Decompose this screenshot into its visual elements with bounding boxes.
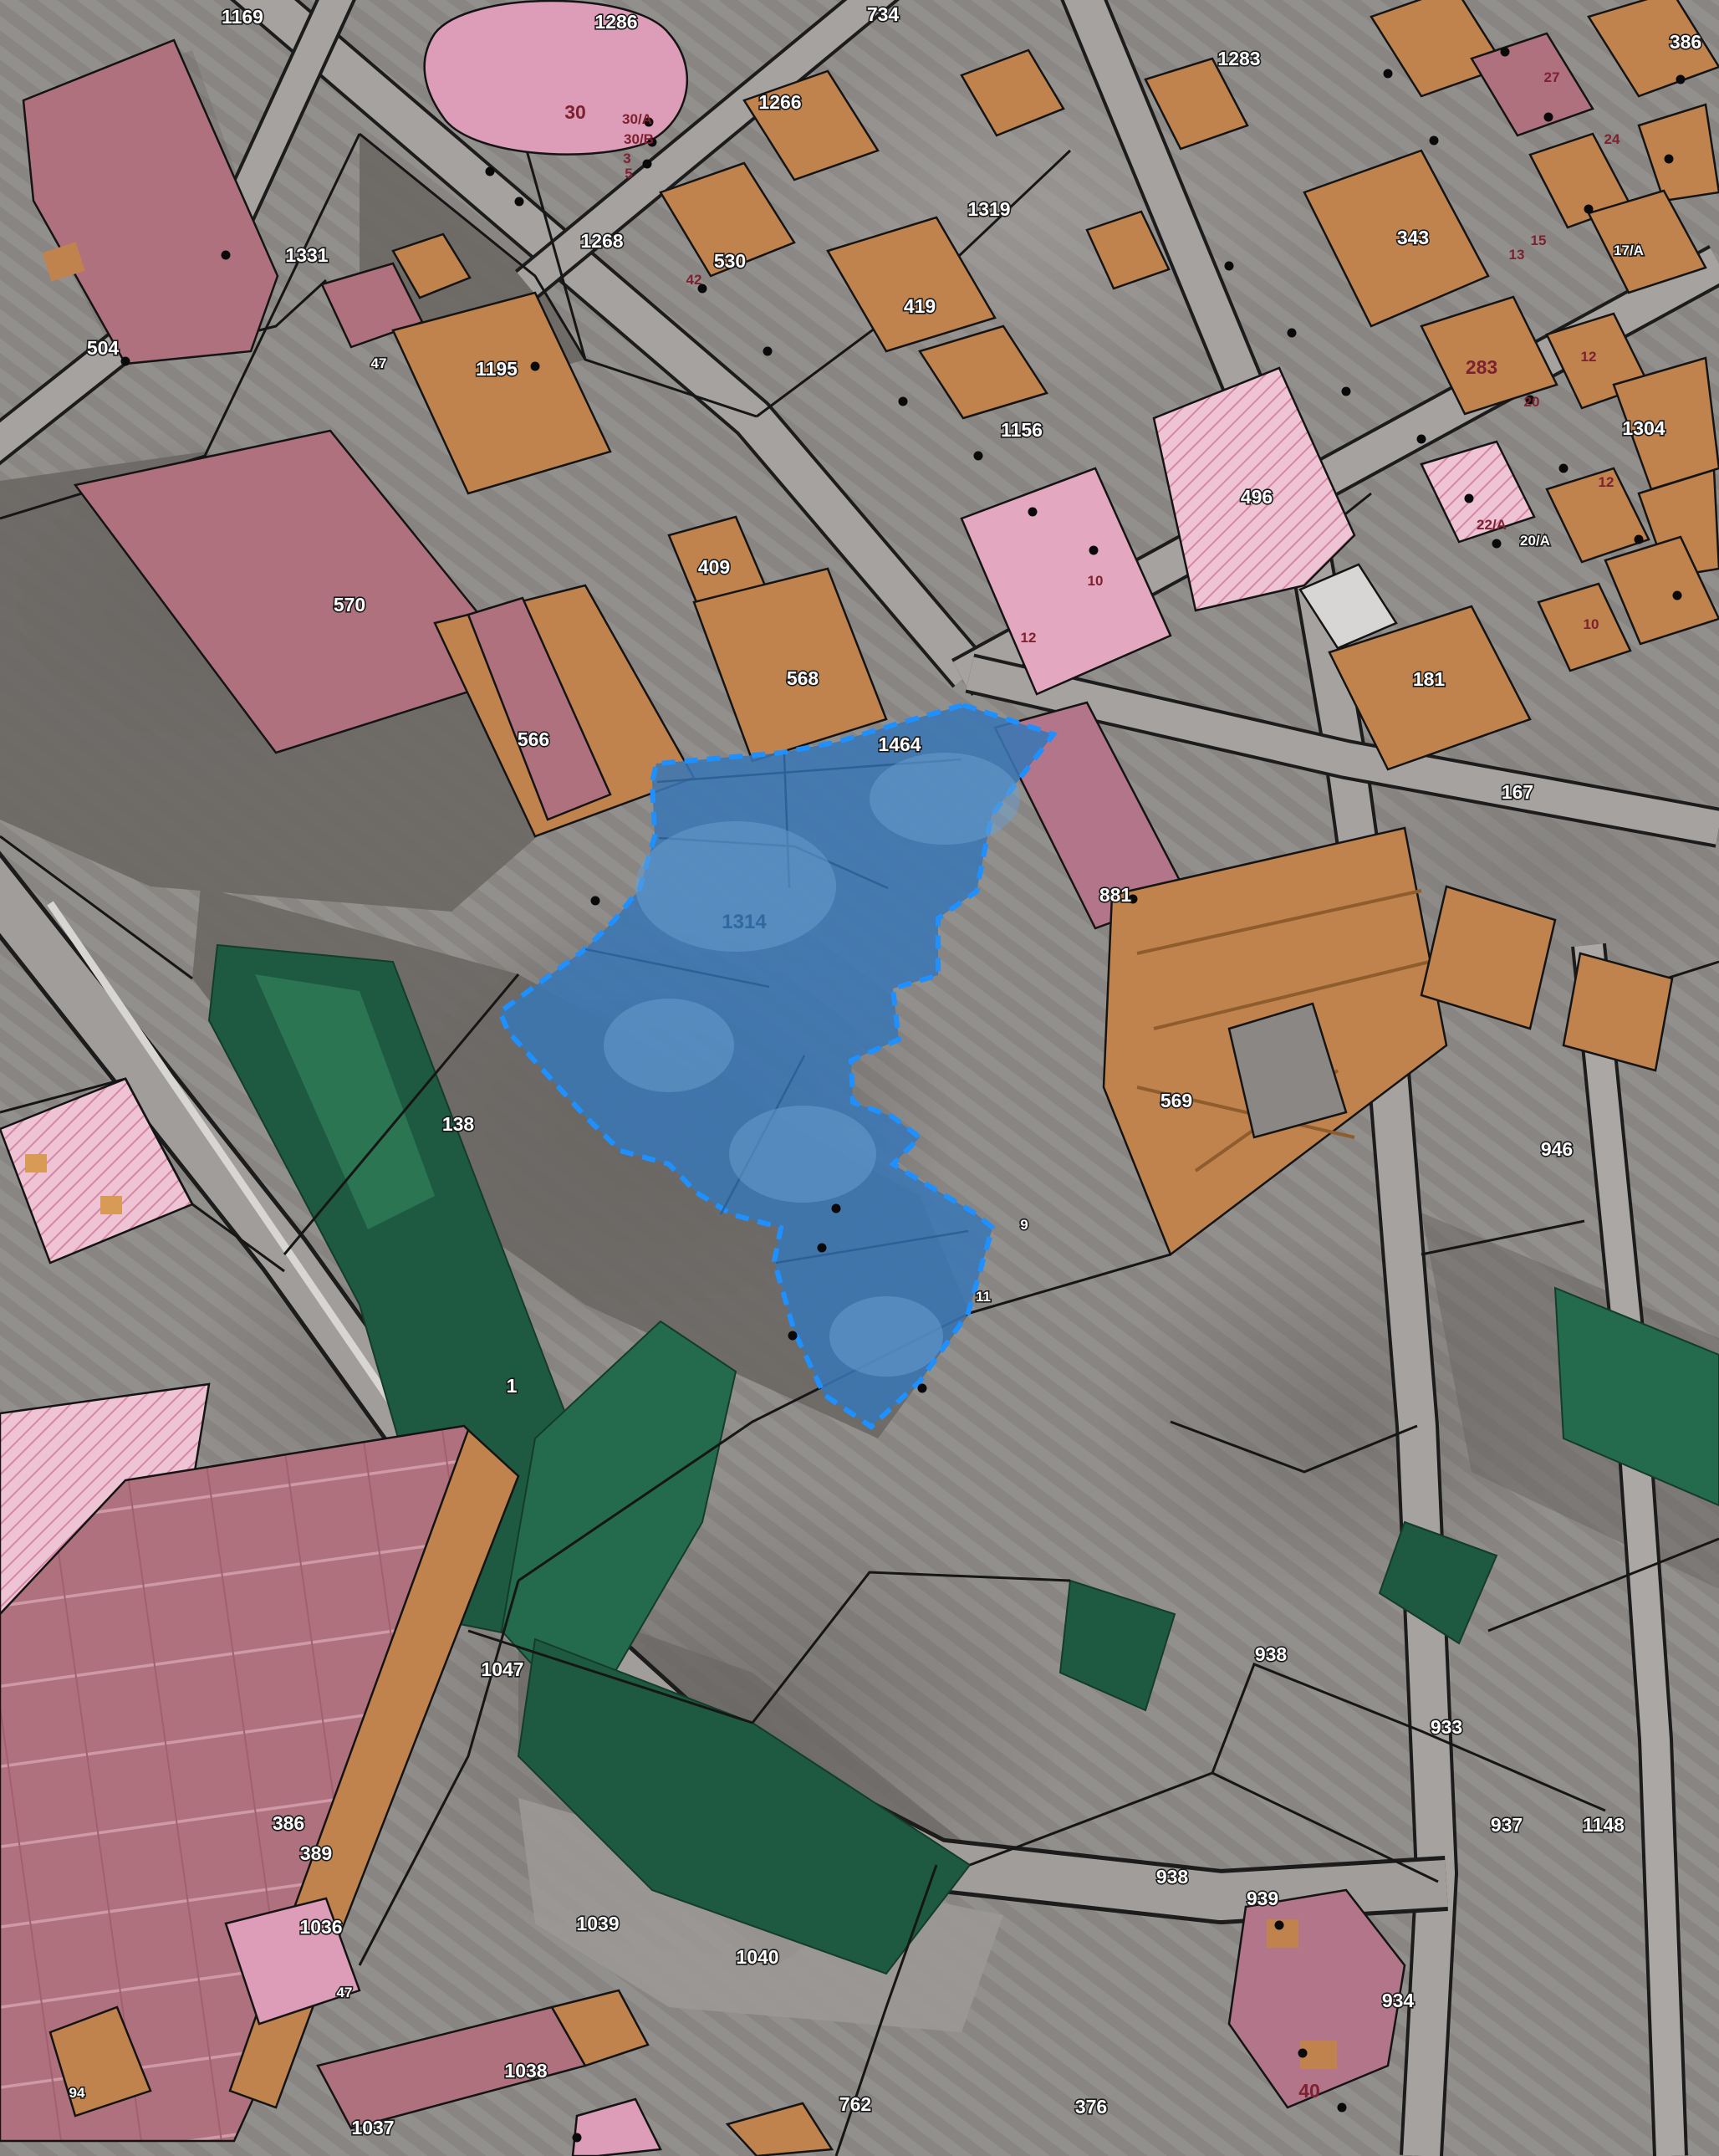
parcel-label-881: 881 xyxy=(1099,884,1132,906)
parcel-label-496: 496 xyxy=(1241,486,1273,508)
parcel-label-15: 15 xyxy=(1531,232,1547,248)
parcel-label-24: 24 xyxy=(1604,131,1620,147)
parcel-label-946: 946 xyxy=(1541,1138,1573,1160)
survey-point xyxy=(1635,535,1644,544)
survey-point xyxy=(121,357,130,366)
parcel-label-1266: 1266 xyxy=(758,91,801,113)
parcel-label-138: 138 xyxy=(442,1113,475,1135)
parcel-label-3: 3 xyxy=(623,151,630,166)
parcel-label-47: 47 xyxy=(371,355,387,371)
parcel-label-9: 9 xyxy=(1020,1217,1028,1233)
parcel-label-1464: 1464 xyxy=(878,733,921,755)
survey-point xyxy=(222,251,231,260)
survey-point xyxy=(788,1331,798,1341)
parcel-label-734: 734 xyxy=(867,3,900,25)
survey-point xyxy=(1584,205,1594,214)
survey-point xyxy=(1665,155,1674,164)
parcel-label-1286: 1286 xyxy=(594,11,637,33)
parcel-label-389: 389 xyxy=(300,1842,332,1864)
parcel-label-1319: 1319 xyxy=(967,198,1010,220)
gis-viewer: { "map": { "type": "cadastral-orthophoto… xyxy=(0,0,1719,2156)
parcel-label-1148: 1148 xyxy=(1583,1814,1625,1836)
parcel-label-1283: 1283 xyxy=(1217,48,1260,69)
parcel-label-1036: 1036 xyxy=(299,1916,342,1938)
parcel-label-386: 386 xyxy=(273,1812,304,1834)
parcel-label-1047: 1047 xyxy=(481,1658,523,1680)
survey-point xyxy=(1342,387,1351,396)
parcel-label-12: 12 xyxy=(1599,474,1614,490)
parcel-label-1: 1 xyxy=(507,1375,518,1397)
survey-point xyxy=(832,1204,841,1213)
parcel-label-762: 762 xyxy=(839,2093,871,2115)
parcel-label-12: 12 xyxy=(1581,349,1597,365)
survey-point xyxy=(918,1384,927,1393)
survey-point xyxy=(1544,113,1553,122)
parcel-label-20-A: 20/A xyxy=(1520,533,1550,549)
parcel-label-1038: 1038 xyxy=(504,2060,547,2082)
parcel-label-30: 30 xyxy=(564,101,586,123)
parcel-label-568: 568 xyxy=(787,667,819,689)
parcel-label-1195: 1195 xyxy=(476,358,518,380)
parcel-label-1314: 1314 xyxy=(722,911,767,933)
survey-point xyxy=(1028,508,1038,517)
survey-point xyxy=(643,160,652,169)
parcel-label-22-A: 22/A xyxy=(1477,517,1507,533)
parcel-label-937: 937 xyxy=(1491,1814,1523,1836)
parcel-label-12: 12 xyxy=(1021,630,1037,646)
parcel-label-94: 94 xyxy=(69,2085,85,2101)
parcel-label-386: 386 xyxy=(1670,31,1701,53)
parcel-label-20: 20 xyxy=(1524,394,1540,410)
parcel-label-1304: 1304 xyxy=(1622,417,1665,439)
survey-point xyxy=(1384,69,1393,79)
parcel-label-42: 42 xyxy=(686,272,702,288)
parcel-label-530: 530 xyxy=(714,250,746,272)
parcel-label-10: 10 xyxy=(1088,573,1104,589)
parcel-label-343: 343 xyxy=(1397,227,1429,248)
parcel-label-1039: 1039 xyxy=(576,1913,619,1934)
survey-point xyxy=(1225,262,1234,271)
survey-point xyxy=(1417,435,1426,444)
parcel-label-933: 933 xyxy=(1431,1716,1462,1738)
parcel-label-5: 5 xyxy=(625,166,632,181)
parcel-label-167: 167 xyxy=(1502,781,1533,803)
survey-point xyxy=(486,167,495,176)
parcel-label-1156: 1156 xyxy=(1001,419,1043,441)
survey-point xyxy=(899,397,908,406)
survey-point xyxy=(1465,494,1474,503)
parcel-label-1268: 1268 xyxy=(580,230,623,252)
survey-point xyxy=(591,897,600,906)
cadastral-map-canvas[interactable]: 11691286734128338612663030/A30/B35272413… xyxy=(0,0,1719,2156)
survey-point xyxy=(1430,136,1439,146)
survey-point xyxy=(1559,464,1569,473)
parcel-label-10: 10 xyxy=(1584,616,1599,632)
parcel-label-27: 27 xyxy=(1544,69,1560,85)
parcel-label-938: 938 xyxy=(1156,1866,1189,1888)
parcel-label-570: 570 xyxy=(334,594,365,616)
parcel-label-504: 504 xyxy=(87,337,120,359)
survey-point xyxy=(974,452,983,461)
survey-point xyxy=(573,2133,582,2143)
parcel-label-938: 938 xyxy=(1255,1643,1288,1665)
building-orange-1195 xyxy=(393,293,610,493)
building-mauve-934 xyxy=(1229,1890,1405,2107)
parcel-label-13: 13 xyxy=(1509,247,1525,263)
parcel-label-939: 939 xyxy=(1247,1888,1278,1909)
survey-point xyxy=(1288,329,1297,338)
survey-point xyxy=(1501,48,1510,57)
parcel-label-181: 181 xyxy=(1413,668,1446,690)
parcel-label-1037: 1037 xyxy=(351,2117,394,2138)
parcel-label-376: 376 xyxy=(1075,2096,1107,2118)
parcel-label-30-A: 30/A xyxy=(622,111,652,127)
survey-point xyxy=(1492,539,1502,549)
parcel-label-47: 47 xyxy=(337,1985,353,2000)
parcel-label-283: 283 xyxy=(1466,356,1497,378)
parcel-label-17-A: 17/A xyxy=(1614,243,1644,258)
survey-point xyxy=(1089,546,1099,555)
parcel-label-1040: 1040 xyxy=(736,1946,778,1968)
survey-point xyxy=(1676,75,1686,84)
survey-point xyxy=(1338,2103,1347,2113)
parcel-label-30-B: 30/B xyxy=(624,131,654,147)
survey-point xyxy=(1275,1921,1284,1930)
survey-point xyxy=(531,362,540,371)
parcel-label-419: 419 xyxy=(904,295,936,317)
building-orange-419 xyxy=(828,217,995,351)
parcel-label-409: 409 xyxy=(698,556,730,578)
survey-point xyxy=(515,197,524,207)
parcel-label-1331: 1331 xyxy=(285,244,328,266)
survey-point xyxy=(763,347,773,356)
survey-point xyxy=(818,1244,827,1253)
survey-point xyxy=(1673,591,1682,600)
survey-point xyxy=(1298,2049,1308,2058)
parcel-label-11: 11 xyxy=(976,1289,991,1305)
parcel-label-566: 566 xyxy=(518,728,549,750)
parcel-label-1169: 1169 xyxy=(222,6,263,28)
building-mauve-504 xyxy=(23,40,278,364)
parcel-label-934: 934 xyxy=(1382,1990,1415,2011)
parcel-label-40: 40 xyxy=(1298,2080,1320,2102)
parcel-label-569: 569 xyxy=(1160,1090,1192,1111)
